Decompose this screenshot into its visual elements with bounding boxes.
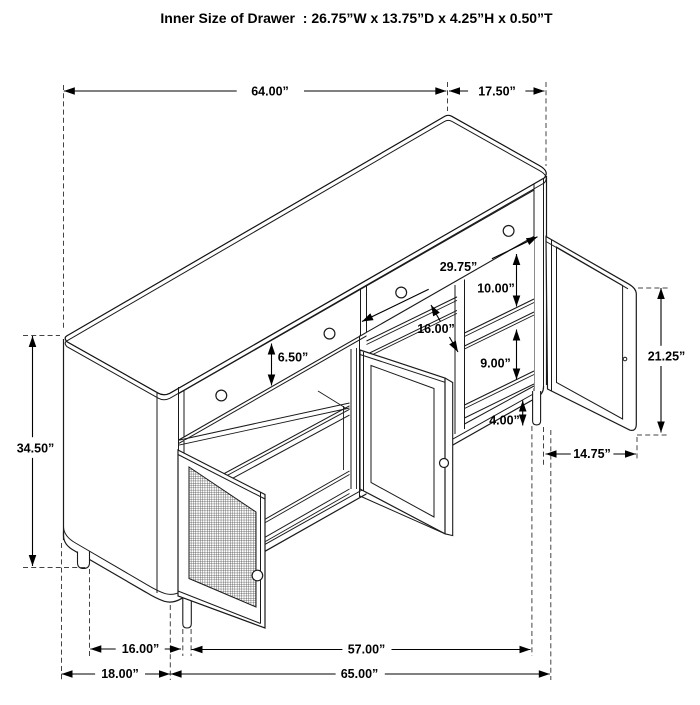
svg-text:14.75”: 14.75” xyxy=(573,447,611,461)
svg-text:17.50”: 17.50” xyxy=(478,85,516,99)
svg-text:18.00”: 18.00” xyxy=(101,667,139,681)
svg-text:57.00”: 57.00” xyxy=(348,643,386,657)
svg-text:21.25”: 21.25” xyxy=(648,350,686,364)
svg-text:4.00”: 4.00” xyxy=(489,414,520,428)
svg-text:Inner Size of Drawer : 26.75”: Inner Size of Drawer : 26.75”W x 13.75”D… xyxy=(160,10,553,26)
svg-text:65.00”: 65.00” xyxy=(341,667,379,681)
svg-text:6.50”: 6.50” xyxy=(278,351,309,365)
svg-text:16.00”: 16.00” xyxy=(417,322,455,336)
svg-text:29.75”: 29.75” xyxy=(440,260,478,274)
svg-text:9.00”: 9.00” xyxy=(480,357,511,371)
svg-text:34.50”: 34.50” xyxy=(17,442,55,456)
svg-text:16.00”: 16.00” xyxy=(122,642,160,656)
svg-text:10.00”: 10.00” xyxy=(477,282,515,296)
svg-text:64.00”: 64.00” xyxy=(251,85,289,99)
